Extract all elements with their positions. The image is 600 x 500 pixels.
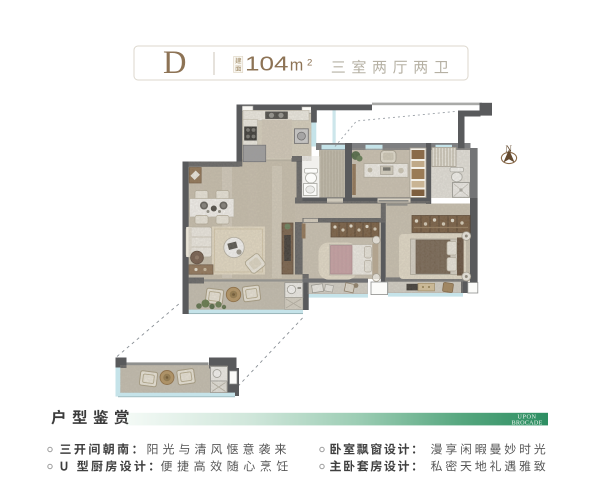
svg-text:BROCADE: BROCADE: [512, 420, 543, 427]
svg-text:m: m: [290, 57, 303, 75]
svg-text:104: 104: [245, 53, 289, 76]
svg-text:N: N: [506, 144, 513, 154]
svg-text:2: 2: [307, 58, 312, 69]
svg-text:D: D: [163, 45, 186, 81]
